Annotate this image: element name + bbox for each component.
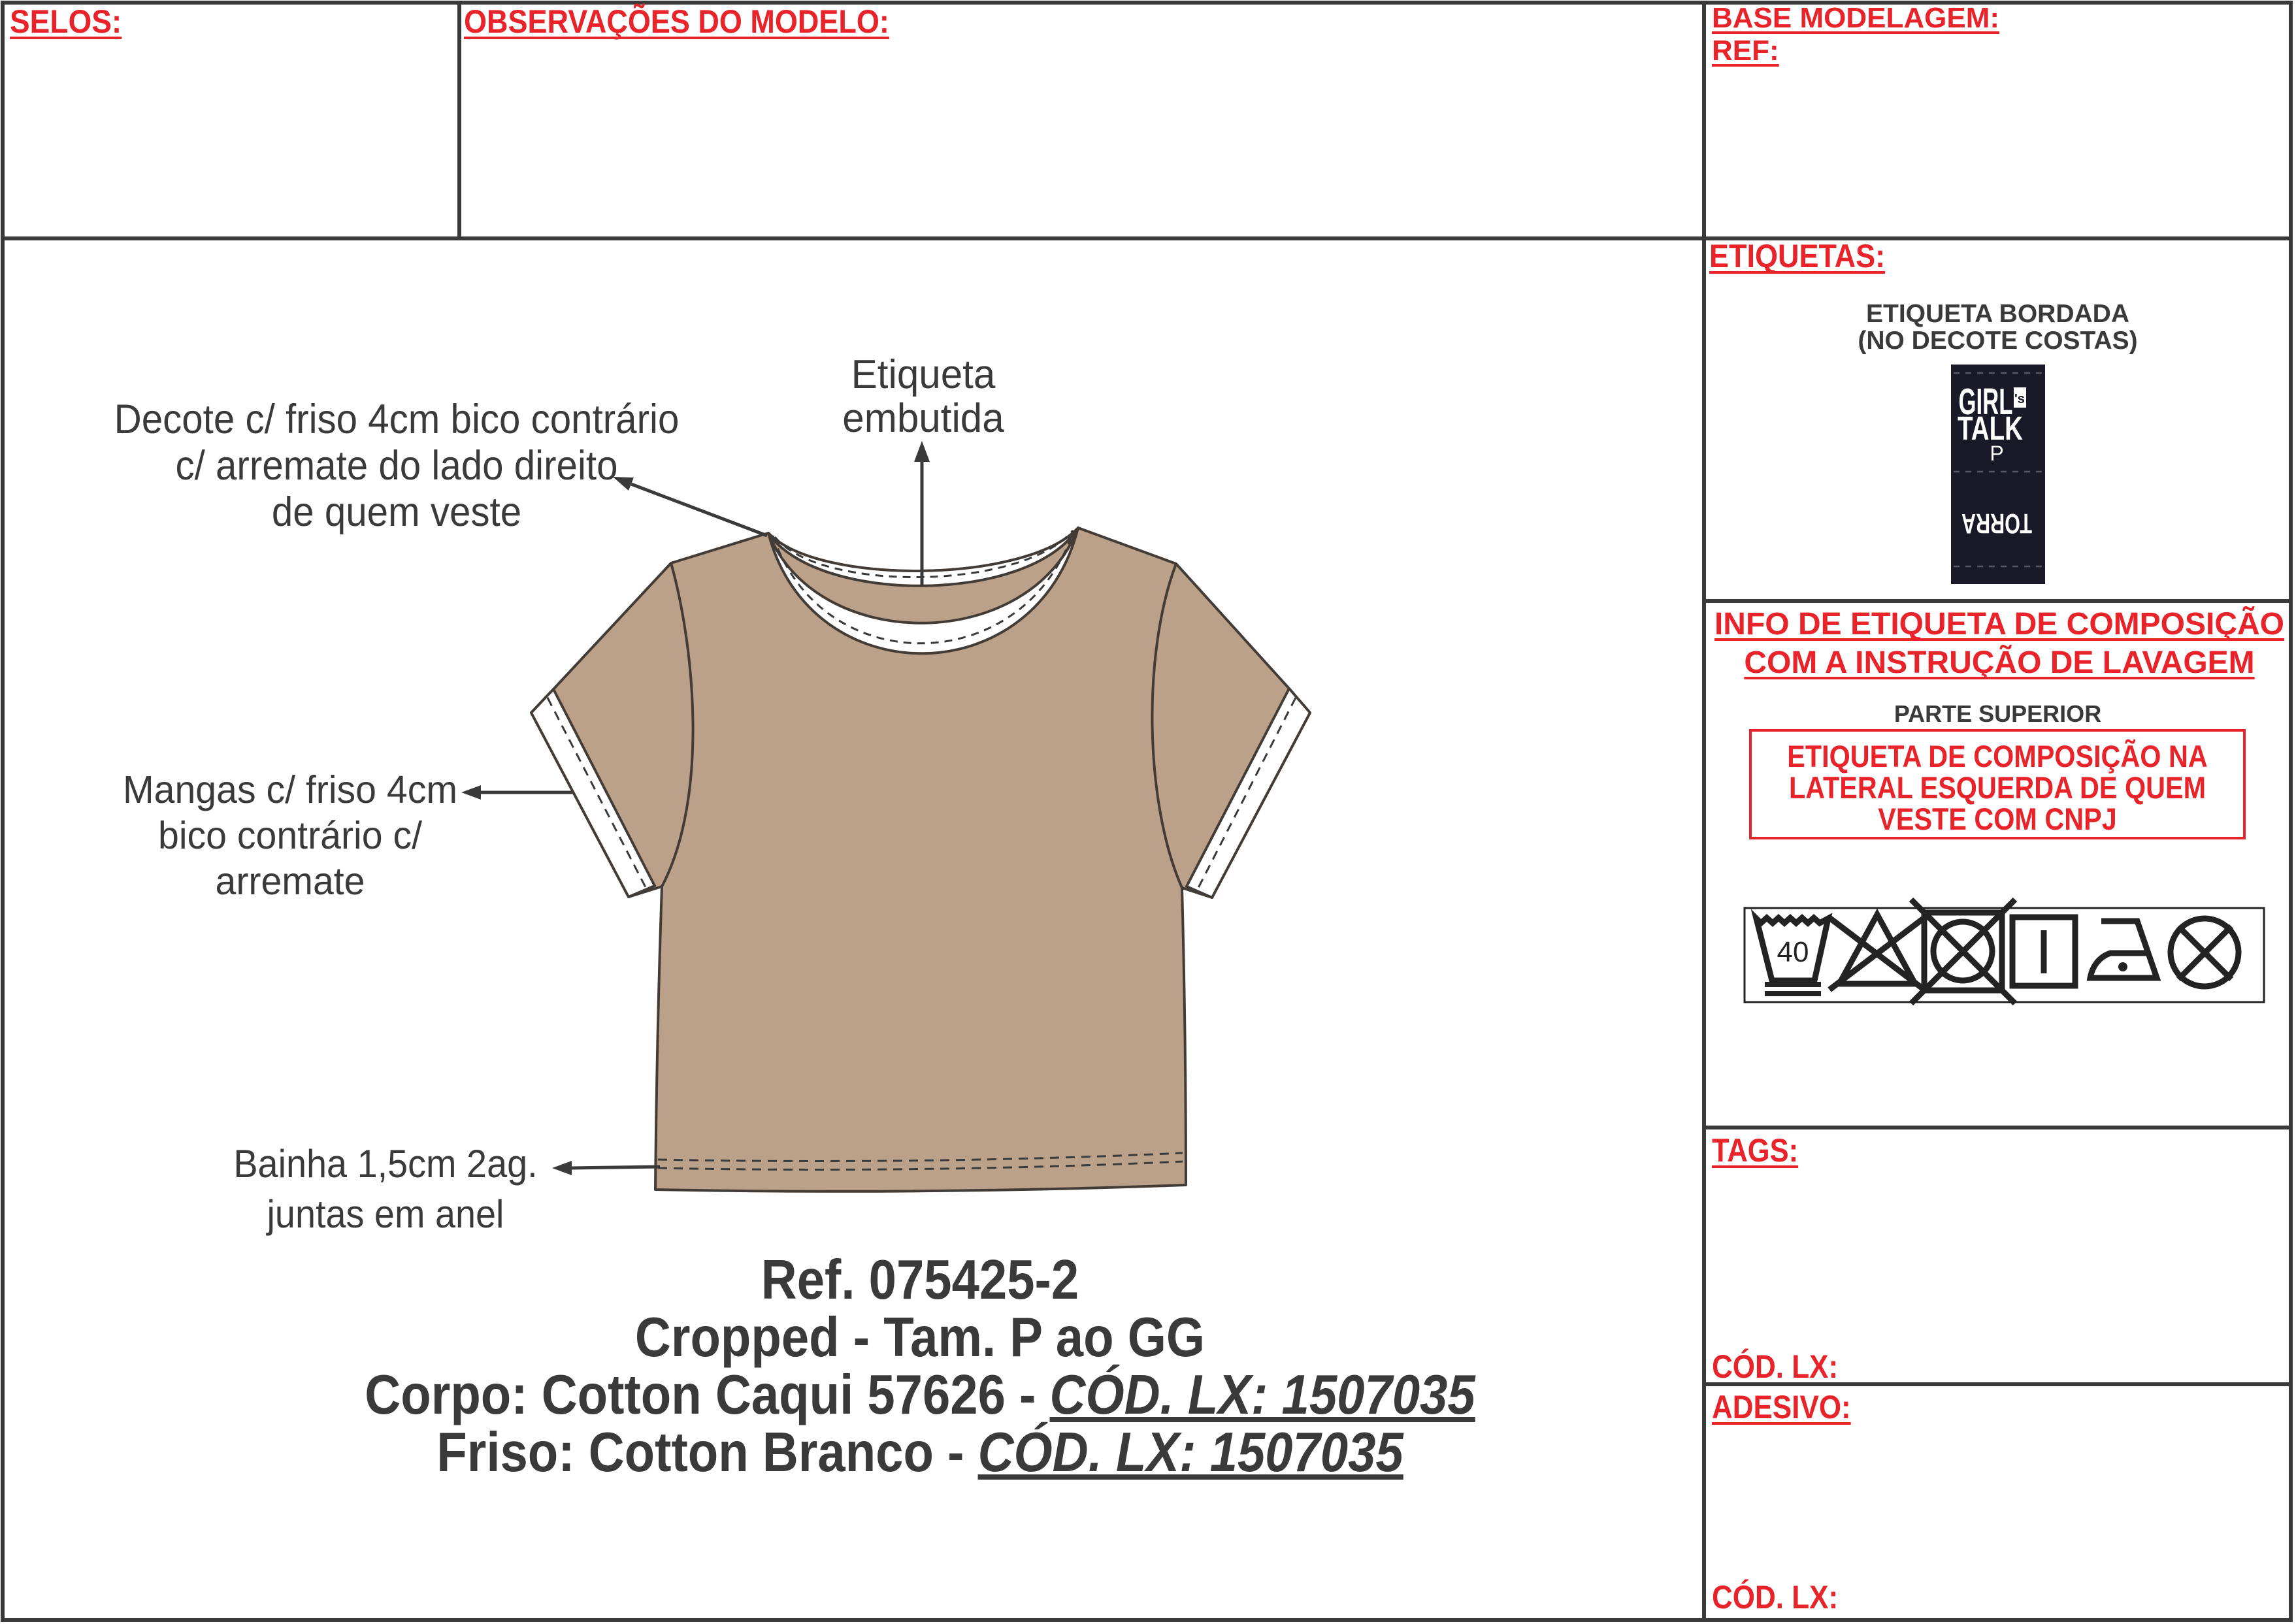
svg-text:'s: 's bbox=[2014, 392, 2025, 406]
svg-text:40: 40 bbox=[1777, 936, 1809, 968]
svg-text:TORRA: TORRA bbox=[1961, 508, 2032, 539]
svg-text:P: P bbox=[1990, 442, 2003, 465]
